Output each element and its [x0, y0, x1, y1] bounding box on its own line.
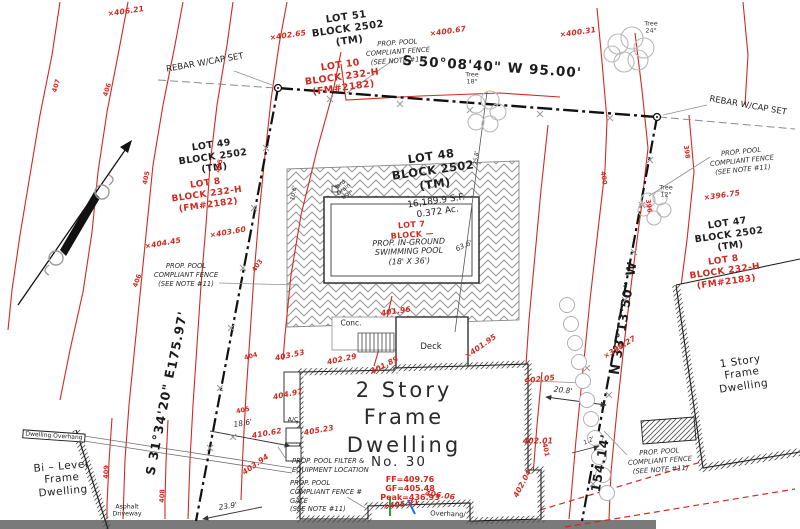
dim-20-8: 20.8' [553, 386, 573, 397]
fence-note-right-bottom: PROP. POOL COMPLIANT FENCE (SEE NOTE #11… [627, 446, 693, 477]
conc-label: Conc. [340, 320, 361, 329]
tree-24-label: Tree 24" [644, 21, 658, 36]
main-dwelling-title: 2 Story Frame Dwelling [347, 377, 461, 459]
text-line: 18" [465, 79, 479, 86]
contour-label-398: 398 [681, 145, 690, 160]
tree-18-label: Tree 18" [465, 72, 479, 87]
text-line: 24" [644, 28, 658, 35]
text-line: 2 Story [347, 377, 461, 404]
text-line: GATE [290, 497, 362, 506]
text-line: Driveway [112, 511, 141, 518]
text-line: Frame [347, 404, 461, 431]
north-arrow [18, 140, 132, 305]
fence-note-left: PROP. POOL COMPLIANT FENCE (SEE NOTE #11… [154, 262, 218, 288]
contour-label-401: 401 [540, 443, 550, 458]
text-line: (SEE NOTE #11) [154, 279, 218, 288]
contour-label-409: 409 [103, 465, 111, 479]
text-line: (SEE NOTE #11) [290, 505, 362, 514]
pool-filter-note: PROP. POOL FILTER & EQUIPMENT LOCATION [292, 457, 369, 475]
contour-label-396: 396 [643, 199, 652, 214]
text-line: Asphalt [112, 504, 141, 511]
property-line-extensions [158, 80, 795, 129]
stairs [358, 333, 394, 352]
pool-label: PROP. IN-GROUND SWIMMING POOL (18' X 36'… [372, 237, 446, 268]
bi-level-dwelling-label: Bi – Level Frame Dwelling [33, 458, 91, 500]
site-plan-drawing: LOT 51 BLOCK 2502 (TM) LOT 10 BLOCK 232-… [0, 0, 800, 529]
text-line: COMPLIANT FENCE [154, 271, 218, 280]
fence-note-top: PROP. POOL COMPLIANT FENCE (SEE NOTE #11… [365, 37, 431, 68]
contour-label-408: 408 [159, 489, 167, 503]
overhang-label: Overhang/ [430, 509, 466, 518]
one-story-dwelling-label: 1 Story Frame Dwelling [715, 352, 769, 396]
ac-label: A/C [288, 416, 299, 423]
contour-label-400: 400 [598, 171, 607, 186]
text-line: EQUIPMENT LOCATION [292, 466, 369, 475]
tree-12-label: Tree 12" [659, 185, 673, 200]
asphalt-driveway-label: Asphalt Driveway [112, 504, 141, 519]
main-dwelling-number: No. 30 [371, 455, 427, 471]
text-line: 12" [659, 192, 673, 199]
text-line: PROP. POOL [154, 262, 218, 271]
text-line: COMPLIANT FENCE # [290, 488, 362, 497]
fence-gate-note: PROP. POOL COMPLIANT FENCE # GATE (SEE N… [290, 479, 362, 514]
deck-label: Deck [420, 342, 441, 352]
text-line: PROP. POOL [290, 479, 362, 488]
text-line: FF=409.76 [380, 475, 440, 484]
